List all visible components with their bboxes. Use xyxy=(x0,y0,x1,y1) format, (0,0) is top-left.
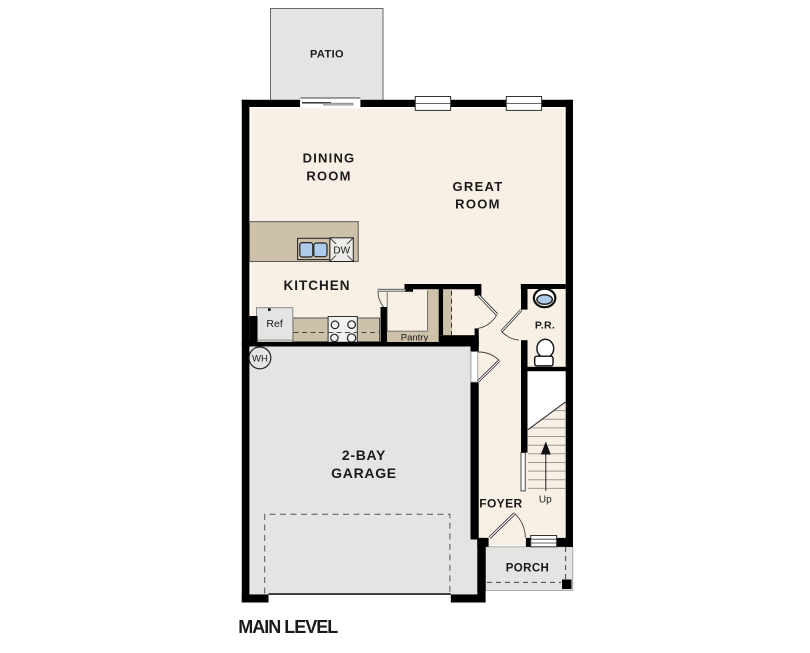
svg-text:ROOM: ROOM xyxy=(455,196,501,211)
svg-text:DW: DW xyxy=(333,246,350,257)
svg-text:ROOM: ROOM xyxy=(306,168,351,183)
svg-text:2-BAY: 2-BAY xyxy=(342,447,386,463)
svg-text:GREAT: GREAT xyxy=(452,179,503,194)
svg-text:DINING: DINING xyxy=(303,150,356,165)
svg-text:PORCH: PORCH xyxy=(506,562,550,574)
svg-text:Pantry: Pantry xyxy=(401,332,429,343)
svg-text:KITCHEN: KITCHEN xyxy=(284,278,351,293)
svg-text:GARAGE: GARAGE xyxy=(331,465,397,481)
svg-text:Up: Up xyxy=(539,494,552,505)
svg-text:Ref: Ref xyxy=(266,318,282,330)
svg-text:P.R.: P.R. xyxy=(535,319,555,331)
svg-text:PATIO: PATIO xyxy=(310,49,344,61)
svg-text:FOYER: FOYER xyxy=(479,496,522,510)
svg-text:WH: WH xyxy=(252,354,268,365)
svg-text:MAIN LEVEL: MAIN LEVEL xyxy=(238,617,338,637)
